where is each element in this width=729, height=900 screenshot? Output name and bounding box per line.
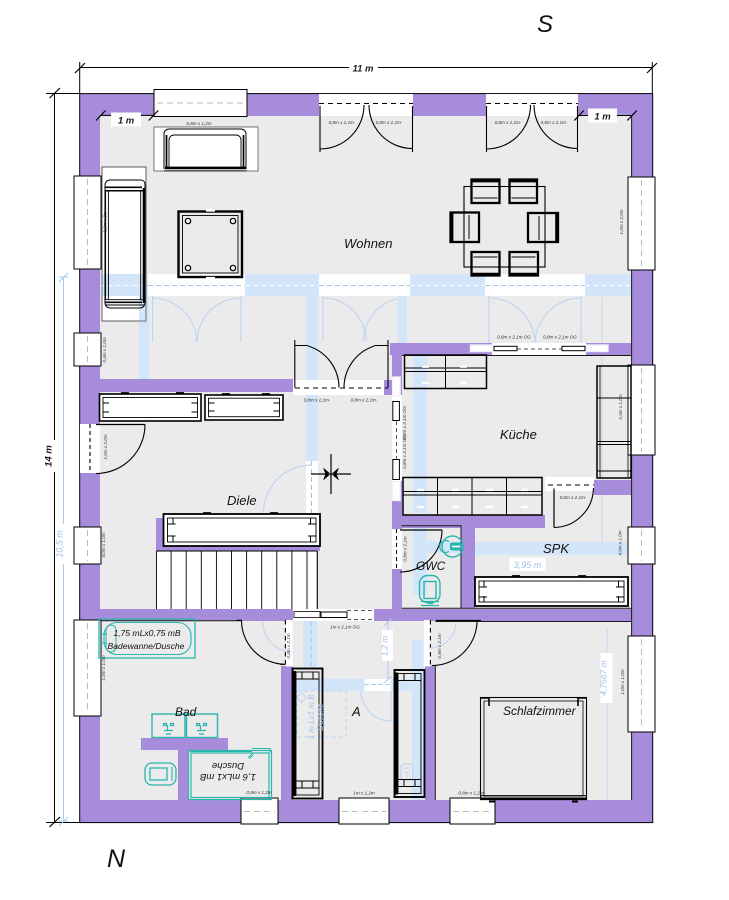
svg-text:1m x 2,1m OG: 1m x 2,1m OG (330, 625, 360, 630)
svg-text:GWC: GWC (416, 559, 446, 573)
svg-text:1,0m x 1,0m: 1,0m x 1,0m (620, 669, 625, 694)
svg-text:10,5 m: 10,5 m (55, 530, 65, 558)
svg-text:1 m Lx1 m B: 1 m Lx1 m B (307, 694, 316, 740)
svg-text:1m x 1,2m: 1m x 1,2m (353, 791, 375, 796)
svg-text:4,0m x 1,0m: 4,0m x 1,0m (618, 530, 623, 555)
svg-text:0,8m x 2,1m·: 0,8m x 2,1m· (376, 120, 403, 125)
svg-text:4,7567 m: 4,7567 m (599, 660, 609, 695)
svg-text:1,0m x 2,0m: 1,0m x 2,0m (619, 209, 624, 234)
svg-text:1,0m x 2,0m: 1,0m x 2,0m (103, 434, 108, 459)
svg-text:Bad: Bad (175, 705, 197, 719)
svg-text:0,8m x 2m: 0,8m x 2m (103, 211, 108, 233)
svg-text:Wohnen: Wohnen (344, 236, 392, 251)
svg-text:N: N (107, 845, 126, 873)
svg-text:Diele: Diele (227, 493, 257, 508)
svg-text:0,8m x 2,1m·: 0,8m x 2,1m· (329, 120, 356, 125)
svg-text:1,0m x 1,0m: 1,0m x 1,0m (101, 655, 106, 680)
svg-text:A: A (351, 704, 361, 719)
svg-text:0,8m x 2,1m·: 0,8m x 2,1m· (541, 120, 568, 125)
svg-text:0,8m x 1,2m: 0,8m x 1,2m (186, 121, 211, 126)
svg-text:0,8m x 2,1m: 0,8m x 2,1m (286, 633, 291, 658)
svg-text:1,2 m: 1,2 m (381, 636, 390, 656)
svg-text:1 m: 1 m (118, 116, 135, 127)
svg-text:Badewanne/Dusche: Badewanne/Dusche (108, 641, 185, 651)
svg-text:0,8m x 2,1m: 0,8m x 2,1m (437, 633, 442, 658)
svg-text:0,6m x 1,0m: 0,6m x 1,0m (618, 394, 623, 419)
svg-text:11 m: 11 m (353, 64, 375, 75)
svg-text:0,8m x 1,2m: 0,8m x 1,2m (458, 791, 483, 796)
svg-text:Schlafzimmer: Schlafzimmer (503, 704, 577, 718)
svg-text:0,8m x 2,1m·: 0,8m x 2,1m· (495, 120, 522, 125)
svg-text:S: S (537, 11, 553, 38)
svg-text:0,8m x 2,1m·: 0,8m x 2,1m· (351, 398, 378, 403)
svg-text:0,6m x 1,0m: 0,6m x 1,0m (102, 337, 107, 362)
svg-text:Dusche: Dusche (316, 703, 325, 731)
svg-text:1,6 mLx1 mB: 1,6 mLx1 mB (199, 771, 256, 782)
svg-text:0,8m x 2,1m OG: 0,8m x 2,1m OG (497, 335, 531, 340)
svg-text:0,8m x 2,1m OG: 0,8m x 2,1m OG (402, 435, 407, 469)
svg-text:3,95 m: 3,95 m (514, 560, 542, 570)
svg-text:4,0m x 1,0m: 4,0m x 1,0m (101, 532, 106, 557)
svg-text:SPK: SPK (543, 541, 570, 556)
svg-text:1 m: 1 m (594, 112, 611, 123)
svg-text:0,8m x 2,1m·: 0,8m x 2,1m· (304, 398, 331, 403)
svg-text:0,8m x 2,1m: 0,8m x 2,1m (403, 536, 408, 561)
svg-text:1,75 mLx0,75 mB: 1,75 mLx0,75 mB (113, 628, 181, 638)
svg-text:Küche: Küche (500, 427, 537, 442)
svg-text:Dusche: Dusche (212, 760, 244, 771)
svg-text:0,8m x 2,1m·: 0,8m x 2,1m· (560, 495, 587, 500)
svg-text:0,8m x 1,2m: 0,8m x 1,2m (246, 790, 271, 795)
svg-text:0,8m x 2,1m OG: 0,8m x 2,1m OG (543, 335, 577, 340)
svg-text:14 m: 14 m (44, 445, 55, 467)
svg-text:0,8m x 2,1m OG: 0,8m x 2,1m OG (402, 406, 407, 440)
